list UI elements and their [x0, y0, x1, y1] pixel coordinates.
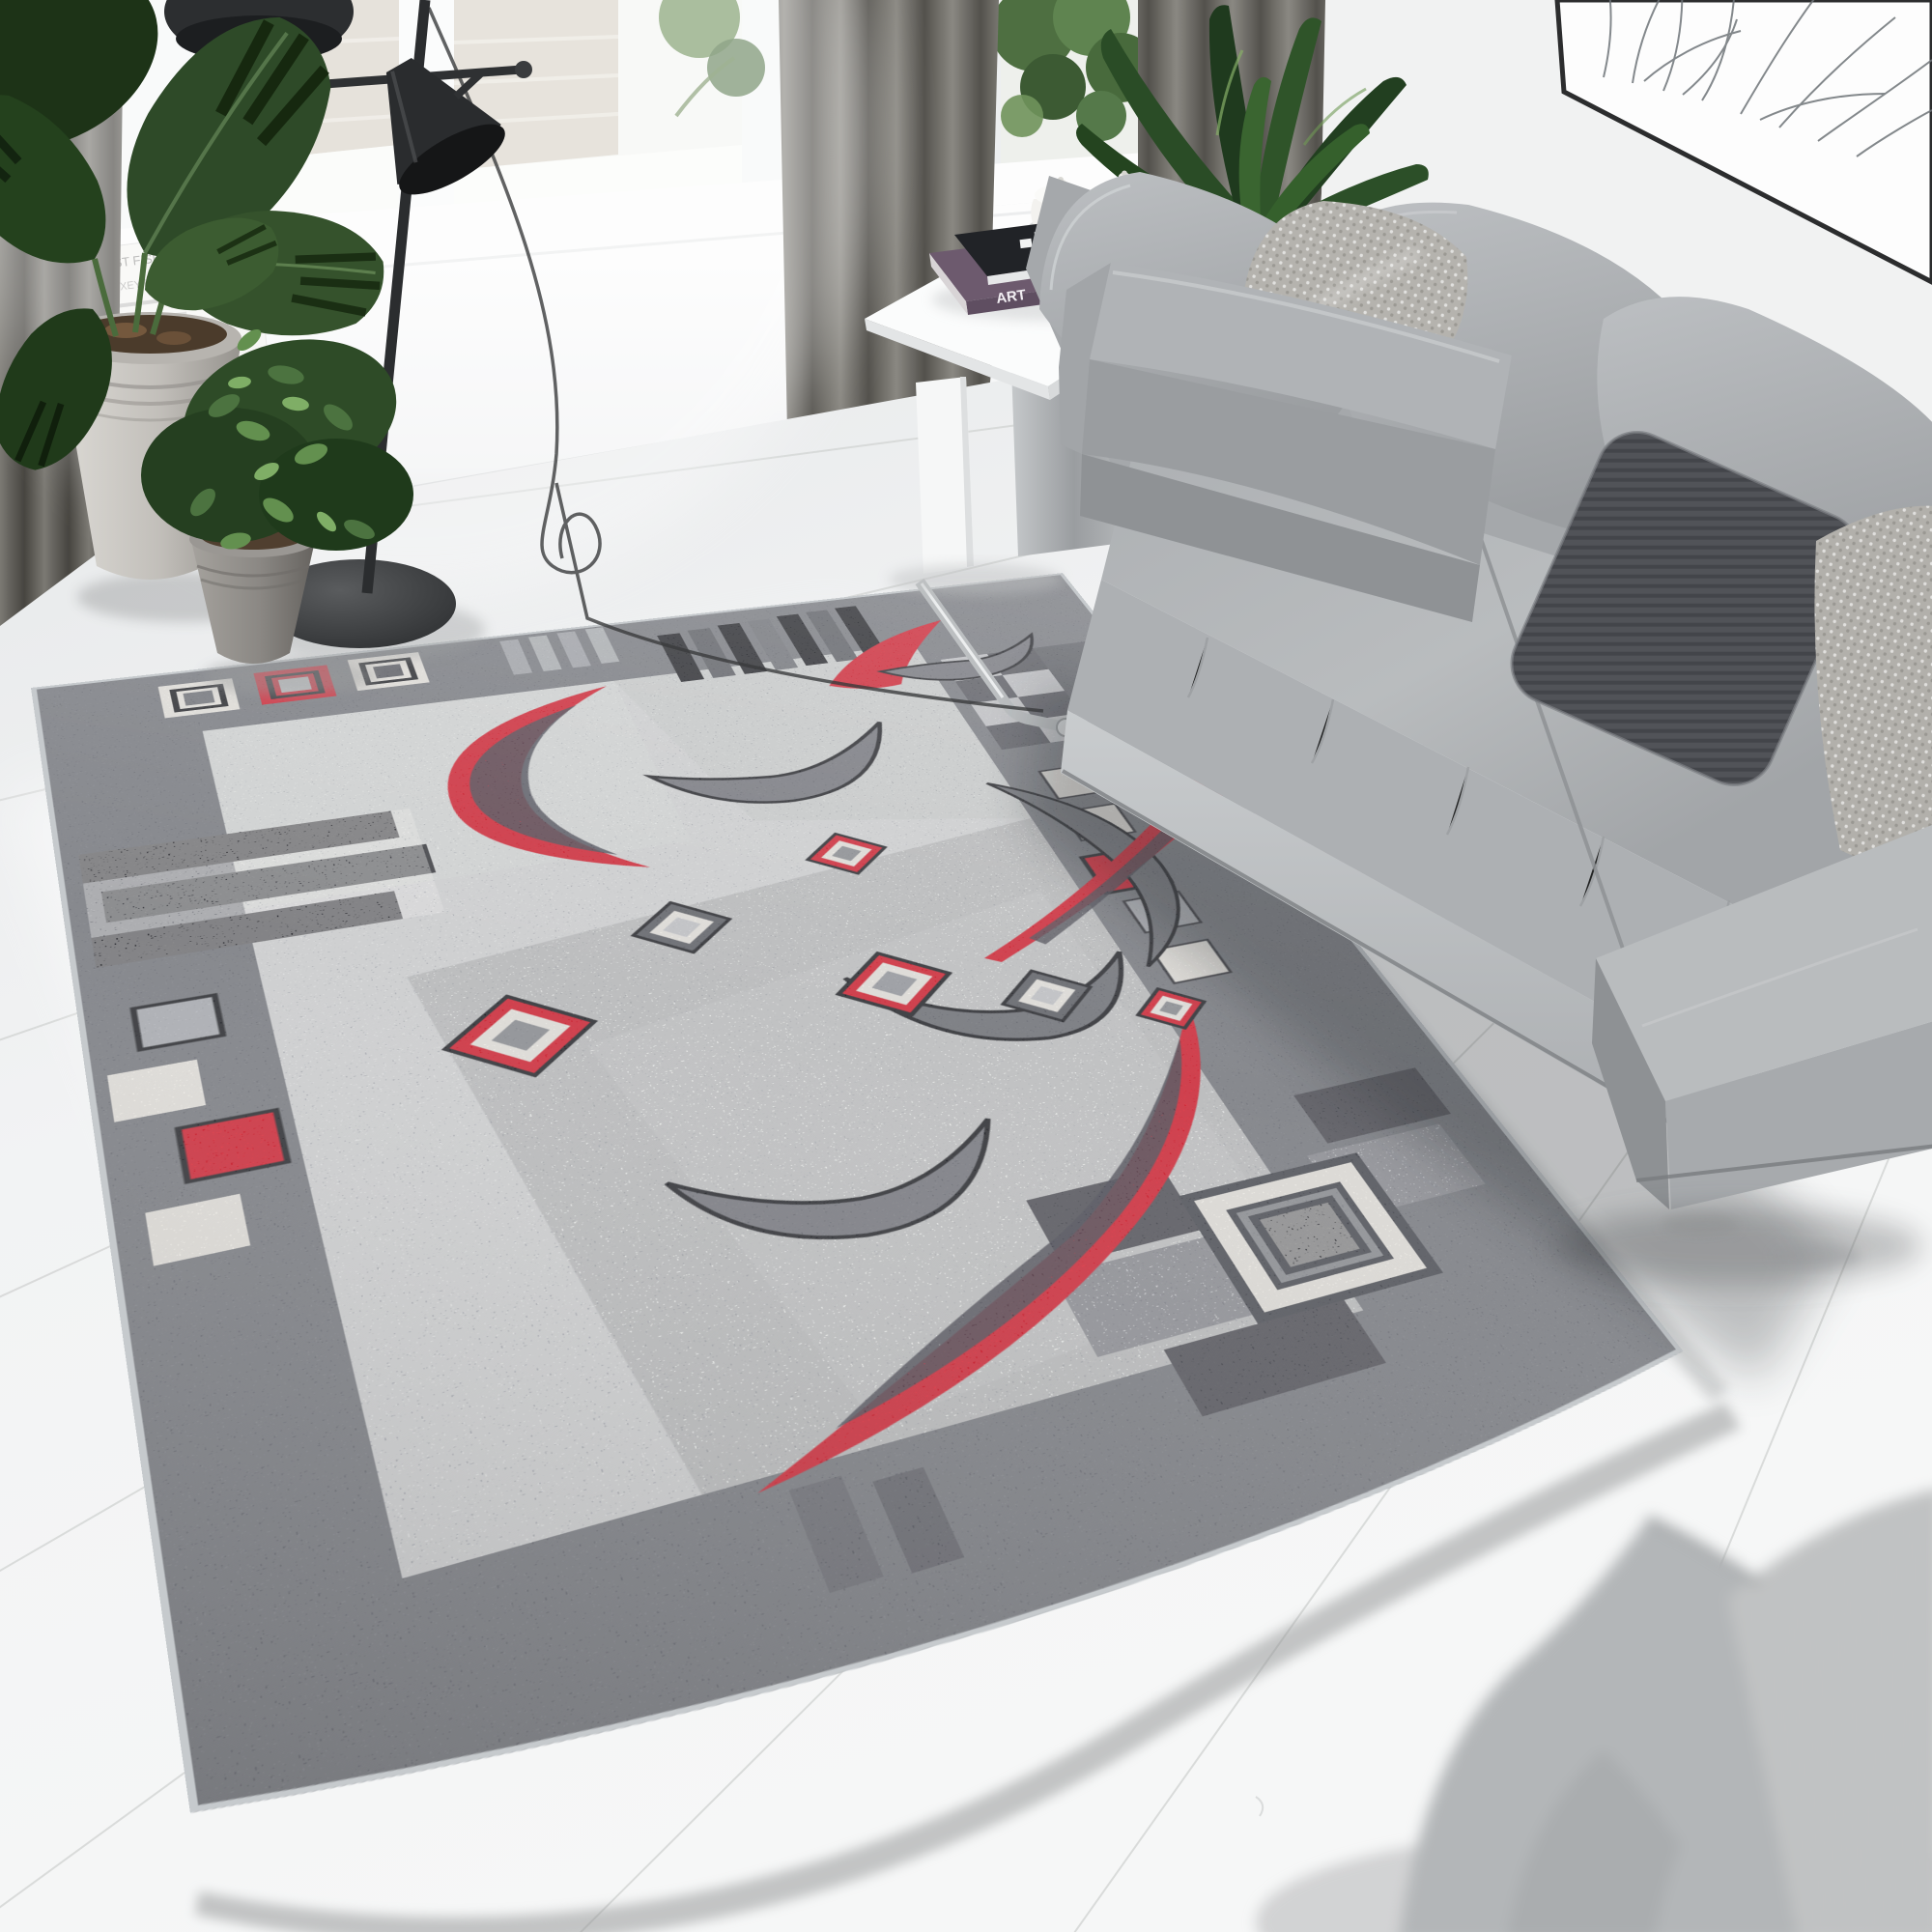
foreground-armchair	[1256, 1488, 1932, 1932]
living-room-photo: LOST FISH ALEXEY BROD ANTIQUE OK SYM	[0, 0, 1932, 1932]
table-shadow	[889, 564, 1063, 595]
lamp-shade-cone	[346, 36, 514, 208]
foreground: ART	[0, 0, 1932, 1932]
chaise-shadow	[1555, 1207, 1922, 1285]
